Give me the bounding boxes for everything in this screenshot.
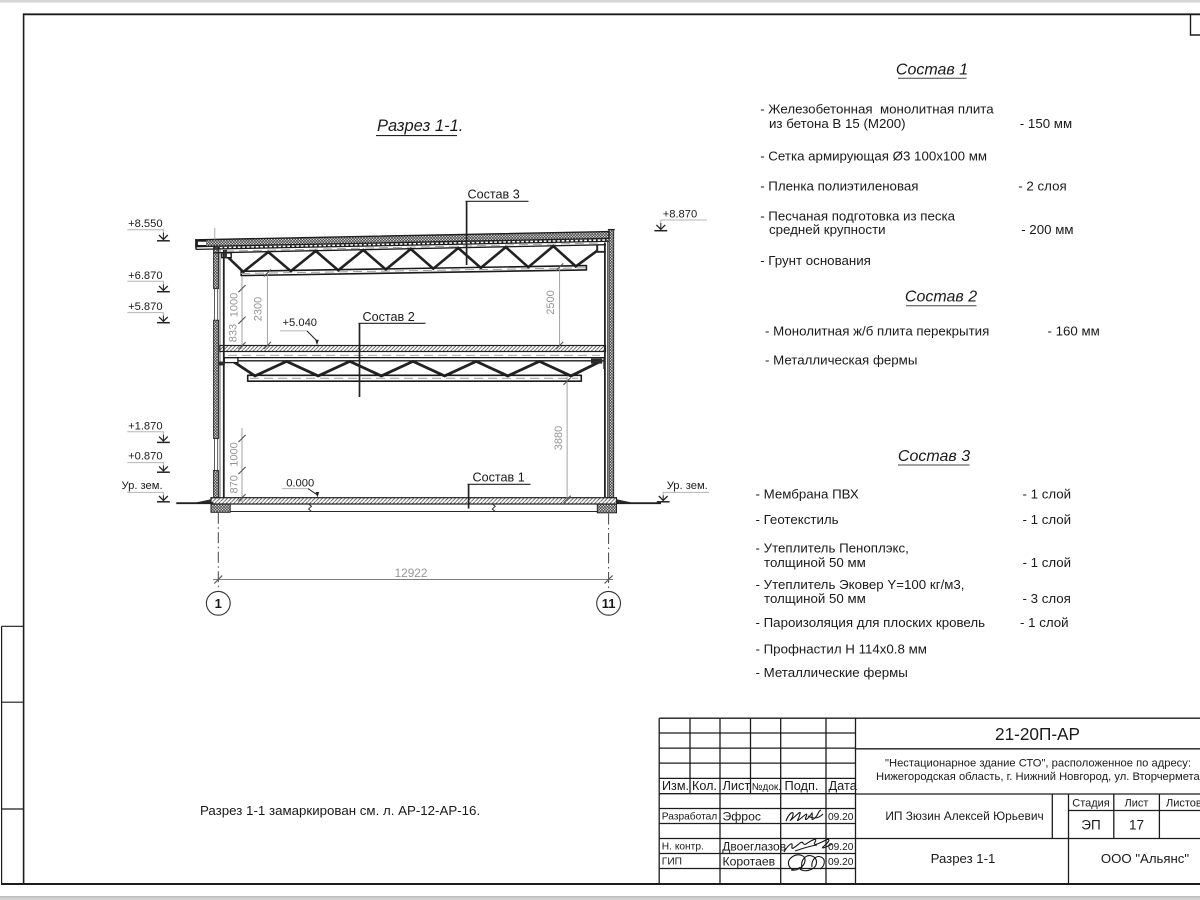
svg-text:Лист: Лист: [723, 778, 751, 793]
svg-text:- Профнастил Н 114х0.8 мм: - Профнастил Н 114х0.8 мм: [756, 642, 927, 657]
svg-text:Кол.: Кол.: [692, 779, 717, 793]
svg-text:Состав 3: Состав 3: [898, 448, 970, 465]
svg-text:средней крупности: средней крупности: [769, 222, 886, 237]
svg-text:Разрез 1-1: Разрез 1-1: [931, 851, 996, 866]
svg-text:- 200 мм: - 200 мм: [1021, 222, 1073, 237]
svg-text:Разработал: Разработал: [662, 811, 718, 823]
svg-text:ГИП: ГИП: [662, 857, 682, 868]
svg-text:12922: 12922: [395, 566, 428, 580]
svg-text:ЭП: ЭП: [1081, 818, 1100, 833]
svg-text:+8.870: +8.870: [663, 208, 698, 220]
svg-text:- 1 слой: - 1 слой: [1023, 512, 1072, 527]
svg-text:Н. контр.: Н. контр.: [662, 842, 704, 853]
svg-text:- Железобетонная монолитная п: - Железобетонная монолитная плита: [760, 102, 994, 117]
svg-text:Подп.: Подп.: [785, 778, 819, 793]
svg-text:0.000: 0.000: [286, 478, 314, 490]
svg-text:11: 11: [602, 596, 616, 611]
svg-text:1000: 1000: [228, 442, 240, 466]
svg-text:2500: 2500: [545, 290, 557, 314]
svg-text:Лист: Лист: [1125, 797, 1149, 809]
svg-text:- Пленка полиэтиленовая: - Пленка полиэтиленовая: [760, 179, 918, 194]
svg-text:Разрез 1-1.: Разрез 1-1.: [377, 117, 463, 135]
svg-text:Эфрос: Эфрос: [723, 809, 761, 823]
svg-text:Стадия: Стадия: [1072, 797, 1110, 809]
svg-text:1: 1: [215, 596, 222, 611]
svg-text:+8.550: +8.550: [128, 218, 163, 230]
svg-text:- 150 мм: - 150 мм: [1020, 116, 1072, 131]
svg-text:Ур. зем.: Ур. зем.: [122, 480, 163, 492]
svg-text:Изм.: Изм.: [662, 779, 689, 793]
svg-text:09.20: 09.20: [828, 857, 854, 868]
svg-text:- Геотекстиль: - Геотекстиль: [756, 512, 839, 527]
svg-text:17: 17: [1129, 818, 1144, 833]
svg-text:- 2 слоя: - 2 слоя: [1018, 179, 1066, 194]
svg-text:из бетона В 15 (М200): из бетона В 15 (М200): [769, 116, 906, 131]
svg-text:- Грунт основания: - Грунт основания: [760, 253, 871, 268]
svg-text:870: 870: [228, 475, 240, 493]
svg-text:3880: 3880: [553, 426, 565, 450]
svg-text:Дата: Дата: [829, 778, 858, 793]
svg-text:09.20: 09.20: [828, 812, 854, 823]
svg-text:21-20П-АР: 21-20П-АР: [995, 724, 1080, 744]
svg-text:2300: 2300: [253, 297, 265, 321]
svg-text:Нижегородская область, г. Нижн: Нижегородская область, г. Нижний Новгоро…: [876, 771, 1200, 783]
svg-text:+5.040: +5.040: [283, 317, 318, 329]
svg-text:- 160 мм: - 160 мм: [1048, 324, 1100, 339]
svg-text:- Утеплитель Пеноплэкс,: - Утеплитель Пеноплэкс,: [756, 541, 909, 556]
svg-text:толщиной 50 мм: толщиной 50 мм: [764, 591, 866, 606]
svg-text:ООО "Альянс": ООО "Альянс": [1101, 851, 1189, 866]
svg-text:+6.870: +6.870: [128, 270, 163, 282]
svg-text:+0.870: +0.870: [128, 451, 163, 463]
svg-text:Ур. зем.: Ур. зем.: [667, 480, 708, 492]
svg-text:толщиной 50 мм: толщиной 50 мм: [764, 555, 866, 570]
svg-text:+1.870: +1.870: [128, 420, 163, 432]
svg-text:"Нестационарное здание СТО", р: "Нестационарное здание СТО", расположенн…: [885, 757, 1191, 769]
svg-text:- Монолитная ж/б плита перекры: - Монолитная ж/б плита перекрытия: [765, 324, 989, 339]
svg-text:- Пароизоляция для плоских кро: - Пароизоляция для плоских кровель: [756, 615, 986, 630]
svg-text:Состав 3: Состав 3: [468, 187, 520, 201]
svg-text:Коротаев: Коротаев: [723, 854, 776, 868]
svg-text:1000: 1000: [228, 293, 240, 317]
svg-text:- Сетка армирующая Ø3 100х100: - Сетка армирующая Ø3 100х100 мм: [760, 149, 987, 164]
svg-text:Состав 2: Состав 2: [363, 310, 415, 324]
svg-text:- 1 слой: - 1 слой: [1023, 555, 1072, 570]
svg-text:Листов: Листов: [1166, 797, 1200, 809]
svg-text:Двоеглазов: Двоеглазов: [722, 839, 786, 853]
svg-text:Разрез 1-1 замаркирован см. л.: Разрез 1-1 замаркирован см. л. АР-12-АР-…: [200, 803, 480, 818]
svg-text:ИП Зюзин Алексей Юрьевич: ИП Зюзин Алексей Юрьевич: [885, 809, 1043, 823]
svg-text:Состав 2: Состав 2: [905, 289, 977, 306]
svg-text:№док.: №док.: [752, 782, 781, 793]
svg-text:- 3 слоя: - 3 слоя: [1023, 591, 1071, 606]
svg-text:09.20: 09.20: [828, 842, 854, 853]
svg-text:- 1 слой: - 1 слой: [1023, 487, 1072, 502]
svg-text:Состав 1: Состав 1: [473, 470, 525, 484]
svg-text:Состав 1: Состав 1: [896, 62, 968, 79]
svg-text:+5.870: +5.870: [128, 301, 163, 313]
svg-text:- Металлические фермы: - Металлические фермы: [756, 665, 908, 680]
svg-text:- 1 слой: - 1 слой: [1020, 615, 1069, 630]
svg-text:- Мембрана ПВХ: - Мембрана ПВХ: [756, 487, 859, 502]
svg-text:- Металлическая фермы: - Металлическая фермы: [765, 353, 917, 368]
svg-text:833: 833: [228, 324, 240, 342]
